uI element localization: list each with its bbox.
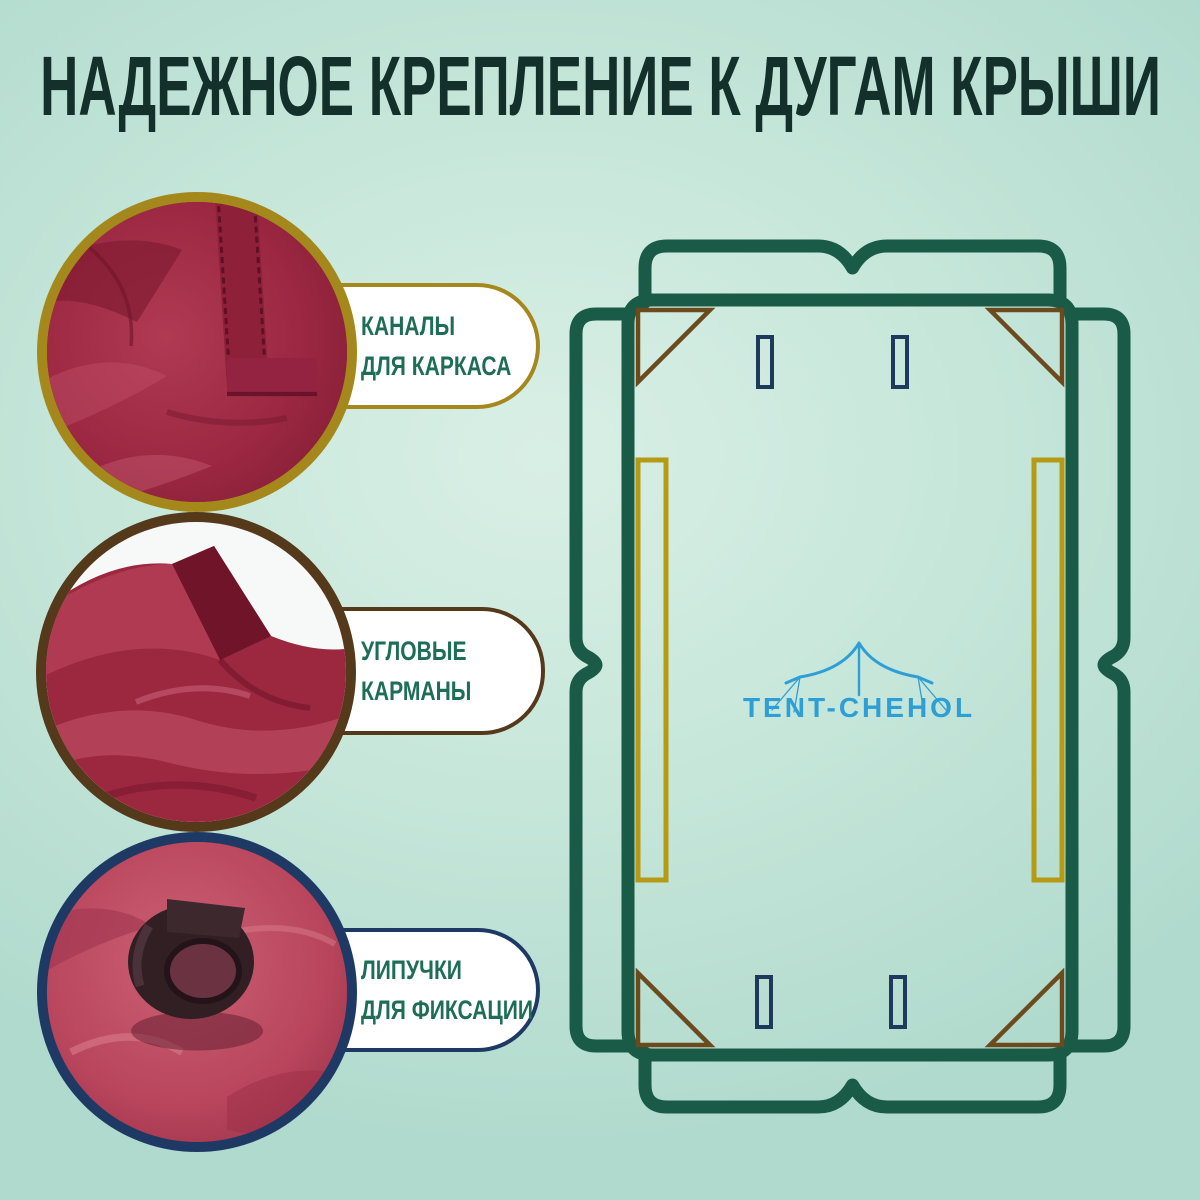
fixation-slot-top-left (758, 337, 772, 387)
brand-name: TENT-CHEHOL (743, 692, 975, 723)
feature-label-line2: ДЛЯ КАРКАСА (361, 346, 498, 386)
feature-label-line1: УГЛОВЫЕ (361, 631, 501, 671)
feature-photo-corner-pocket (36, 512, 356, 832)
feature-label-line1: ЛИПУЧКИ (361, 950, 498, 990)
frame-channel-left (638, 460, 666, 880)
product-infographic: НАДЕЖНОЕ КРЕПЛЕНИЕ К ДУГАМ КРЫШИ КАНАЛЫ … (0, 0, 1200, 1200)
feature-label-line1: КАНАЛЫ (361, 306, 498, 346)
corner-reinforcement-top-right (990, 310, 1062, 382)
page-title: НАДЕЖНОЕ КРЕПЛЕНИЕ К ДУГАМ КРЫШИ (40, 44, 1161, 128)
cover-diagram: TENT-CHEHOL (560, 230, 1140, 1150)
corner-reinforcement-bottom-right (990, 973, 1062, 1045)
cover-body-outline (628, 300, 1072, 1055)
corner-reinforcement-bottom-left (638, 973, 710, 1045)
feature-photo-frame-channel (37, 192, 357, 512)
cover-schematic: TENT-CHEHOL (560, 230, 1140, 1150)
frame-channel-right (1034, 460, 1062, 880)
fixation-slot-bottom-right (891, 977, 905, 1027)
fixation-slot-top-right (893, 337, 907, 387)
fixation-slot-bottom-left (757, 977, 771, 1027)
corner-pocket-photo (46, 522, 346, 822)
header: НАДЕЖНОЕ КРЕПЛЕНИЕ К ДУГАМ КРЫШИ (0, 40, 1200, 132)
feature-photo-velcro-strap (37, 832, 357, 1152)
fabric-channel-photo (47, 202, 347, 502)
feature-label-line2: ДЛЯ ФИКСАЦИИ (361, 990, 498, 1030)
right-flap (1072, 314, 1124, 1046)
brand-logo: TENT-CHEHOL (743, 643, 975, 723)
velcro-strap-photo (47, 842, 347, 1142)
feature-label-line2: КАРМАНЫ (361, 671, 501, 711)
left-flap (576, 314, 628, 1046)
corner-reinforcement-top-left (638, 310, 710, 382)
